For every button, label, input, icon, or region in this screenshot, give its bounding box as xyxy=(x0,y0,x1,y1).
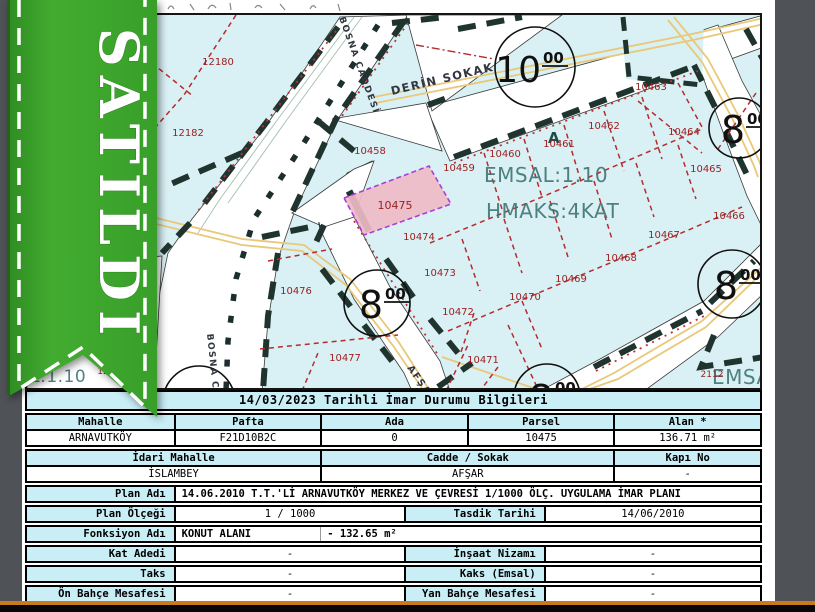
value-alan: 136.71 m² xyxy=(613,431,760,445)
parcel-label-10460: 10460 xyxy=(489,149,521,160)
value-fonksiyon-adi: KONUT ALANI xyxy=(174,527,321,541)
parcel-label-10476: 10476 xyxy=(280,286,312,297)
parcel-label-10466: 10466 xyxy=(713,211,745,222)
col-header-kapi-no: Kapı No xyxy=(613,451,760,465)
label-fonksiyon-adi: Fonksiyon Adı xyxy=(27,527,174,541)
label-insaat-nizami: İnşaat Nizamı xyxy=(404,547,543,561)
kat-adedi-row: Kat Adedi - İnşaat Nizamı - xyxy=(25,545,762,563)
road-width-decimal: 00 xyxy=(747,110,760,128)
parcel-label-10462: 10462 xyxy=(588,121,620,132)
value-fonksiyon-alan: - 132.65 m² xyxy=(320,527,760,541)
value-on-bahce: - xyxy=(174,587,405,601)
label-plan-adi: Plan Adı xyxy=(27,487,174,501)
parcel-label-10475: 10475 xyxy=(378,199,413,212)
parcel-label-10470: 10470 xyxy=(509,292,541,303)
taks-row: Taks - Kaks (Emsal) - xyxy=(25,565,762,583)
parcel-label-10473: 10473 xyxy=(424,268,456,279)
col-header-pafta: Pafta xyxy=(174,415,321,429)
road-width-decimal: 00 xyxy=(385,285,406,303)
parcel-label-10477: 10477 xyxy=(329,353,361,364)
road-width-value: 10 xyxy=(495,50,541,91)
col-header-cadde-sokak: Cadde / Sokak xyxy=(320,451,613,465)
parcel-label-10474: 10474 xyxy=(403,232,435,243)
parcel-label-10464: 10464 xyxy=(668,127,700,138)
label-plan-olcegi: Plan Ölçeği xyxy=(27,507,174,521)
label-yan-bahce: Yan Bahçe Mesafesi xyxy=(404,587,543,601)
road-width-value: 8 xyxy=(721,108,745,152)
value-ada: 0 xyxy=(320,431,467,445)
road-width-value: 8 xyxy=(529,377,553,388)
col-header-idari-mahalle: İdari Mahalle xyxy=(27,451,320,465)
road-width-value: 8 xyxy=(359,283,383,327)
label-kaks-emsal: Kaks (Emsal) xyxy=(404,567,543,581)
zone-text: HMAKS:4KAT xyxy=(486,199,620,223)
plan-olcegi-row: Plan Ölçeği 1 / 1000 Tasdik Tarihi 14/06… xyxy=(25,505,762,523)
zone-text: EMSAL:1.10 xyxy=(484,163,608,187)
value-yan-bahce: - xyxy=(544,587,760,601)
parcel-label-10471: 10471 xyxy=(467,355,499,366)
sold-ribbon: SATILDI xyxy=(7,0,158,433)
value-tasdik-tarihi: 14/06/2010 xyxy=(544,507,760,521)
col-header-alan: Alan * xyxy=(613,415,760,429)
parcel-label-10463: 10463 xyxy=(635,82,667,93)
road-width-decimal: 00 xyxy=(555,379,576,388)
footer-black-strip xyxy=(0,605,815,612)
label-kat-adedi: Kat Adedi xyxy=(27,547,174,561)
col-header-parsel: Parsel xyxy=(467,415,614,429)
value-plan-adi: 14.06.2010 T.T.'Lİ ARNAVUTKÖY MERKEZ VE … xyxy=(174,487,760,501)
value-cadde-sokak: AFŞAR xyxy=(320,467,613,481)
value-pafta: F21D10B2C xyxy=(174,431,321,445)
fonksiyon-row: Fonksiyon Adı KONUT ALANI - 132.65 m² xyxy=(25,525,762,543)
value-insaat-nizami: - xyxy=(544,547,760,561)
value-idari-mahalle: İSLAMBEY xyxy=(27,467,320,481)
parcel-label-10465: 10465 xyxy=(690,164,722,175)
right-gray-band xyxy=(775,0,815,612)
road-width-decimal: 00 xyxy=(543,49,564,67)
road-width-decimal: 00 xyxy=(740,266,760,284)
handwriting-marks xyxy=(160,0,400,13)
parcel-label-10472: 10472 xyxy=(442,307,474,318)
parcel-label-10459: 10459 xyxy=(443,163,475,174)
label-taks: Taks xyxy=(27,567,174,581)
label-on-bahce: Ön Bahçe Mesafesi xyxy=(27,587,174,601)
value-kapi-no: - xyxy=(613,467,760,481)
parcel-label-2112: 2112 xyxy=(701,370,724,380)
parcel-label-10469: 10469 xyxy=(555,274,587,285)
value-plan-olcegi: 1 / 1000 xyxy=(174,507,405,521)
parcel-label-10467: 10467 xyxy=(648,230,680,241)
col-header-ada: Ada xyxy=(320,415,467,429)
sold-listing-zoning-screenshot: { "ribbon": { "label": "SATILDI", "color… xyxy=(0,0,815,612)
road-width-value: 8 xyxy=(714,264,738,308)
parcel-label-12182: 12182 xyxy=(172,128,204,139)
parcel-label-10468: 10468 xyxy=(605,253,637,264)
value-kat-adedi: - xyxy=(174,547,405,561)
parcel-label-12180: 12180 xyxy=(202,57,234,68)
value-kaks-emsal: - xyxy=(544,567,760,581)
label-tasdik-tarihi: Tasdik Tarihi xyxy=(404,507,543,521)
ribbon-label: SATILDI xyxy=(87,28,151,344)
value-taks: - xyxy=(174,567,405,581)
value-mahalle: ARNAVUTKÖY xyxy=(27,431,174,445)
address-block: İdari Mahalle Cadde / Sokak Kapı No İSLA… xyxy=(25,449,762,483)
value-parsel: 10475 xyxy=(467,431,614,445)
parcel-label-10458: 10458 xyxy=(354,146,386,157)
plan-adi-row: Plan Adı 14.06.2010 T.T.'Lİ ARNAVUTKÖY M… xyxy=(25,485,762,503)
parcel-label-10461: 10461 xyxy=(543,139,575,150)
